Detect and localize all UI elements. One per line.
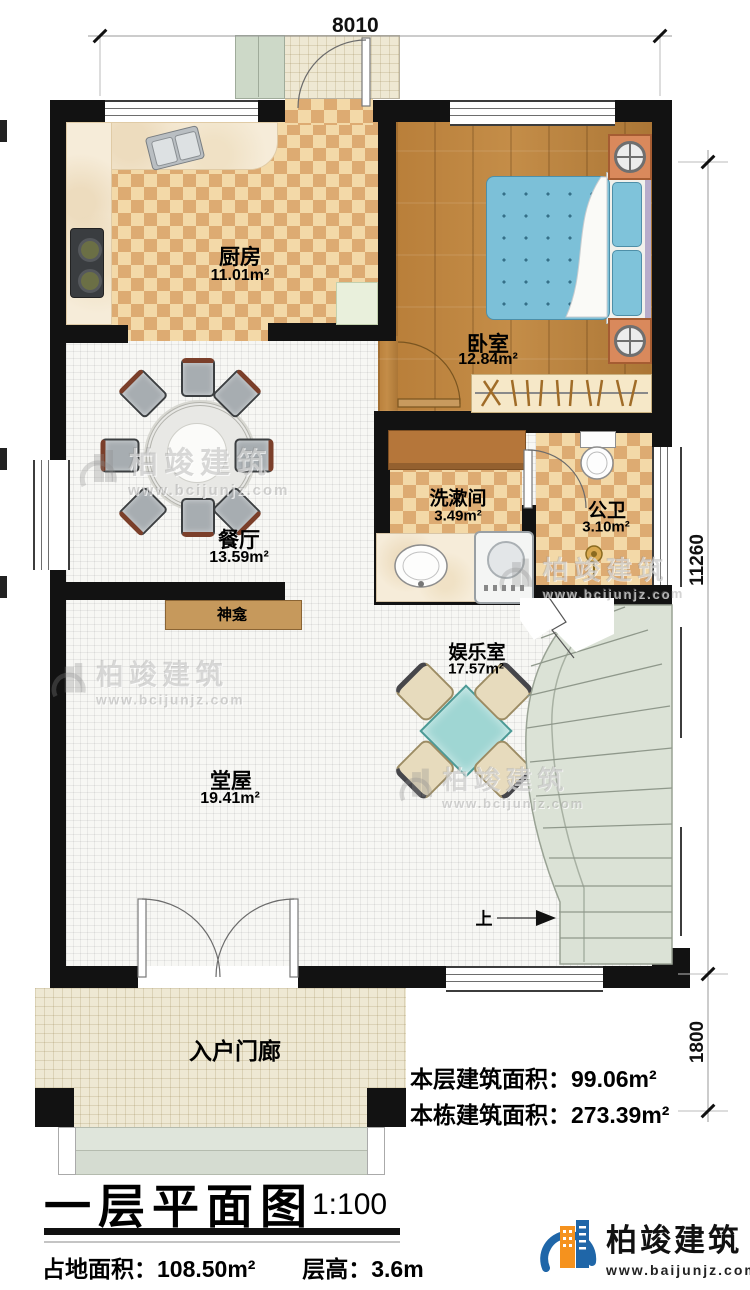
site-area-label: 占地面积： xyxy=(42,1256,157,1282)
room-area-toilet: 3.10m² xyxy=(582,519,630,536)
building-area-label: 本栋建筑面积： xyxy=(410,1102,571,1128)
wall-left-lower xyxy=(50,570,66,966)
washing-machine xyxy=(474,531,534,604)
dining-chair xyxy=(235,439,274,473)
porch-pillar-left xyxy=(35,1088,74,1127)
toilet-tank xyxy=(580,431,616,448)
nightstand-top xyxy=(608,134,652,180)
dining-chair xyxy=(181,498,215,537)
brand-logo-icon xyxy=(538,1212,598,1280)
porch-step-rail-right xyxy=(367,1127,385,1175)
kitchen-door-threshold xyxy=(285,97,373,125)
room-area-hall: 19.41m² xyxy=(200,790,260,808)
floor-height-value: 3.6m xyxy=(371,1256,423,1282)
backdoor-step-divider xyxy=(258,35,259,97)
wardrobe xyxy=(471,374,652,413)
wall-kitchen-bottom-stub xyxy=(50,325,128,343)
washroom-counter xyxy=(376,533,476,602)
nightstand-bottom xyxy=(608,318,652,364)
nightstand-lamp xyxy=(614,141,646,173)
dim-tick xyxy=(701,1104,716,1119)
title-underline-thick xyxy=(44,1228,400,1235)
kitchen-stove xyxy=(70,228,104,298)
site-area-value: 108.50m² xyxy=(157,1256,255,1282)
dim-right-porch-label: 1800 xyxy=(687,1021,709,1063)
room-area-washroom: 3.49m² xyxy=(434,508,482,525)
hall-window xyxy=(446,966,603,992)
site-area-line: 占地面积：108.50m² 层高：3.6m xyxy=(42,1250,424,1284)
stove-burner-1 xyxy=(78,238,102,262)
bedroom-vestibule-floor xyxy=(378,336,398,412)
dim-right-main-label: 11260 xyxy=(687,534,709,586)
porch-step-1 xyxy=(74,1127,369,1152)
wall-kitchen-bottom xyxy=(268,323,396,341)
dining-chair xyxy=(101,439,140,473)
room-label-washroom: 洗漱间 xyxy=(429,484,486,511)
wall-right-3 xyxy=(652,738,672,827)
washroom-cabinet xyxy=(388,430,526,470)
stairs-window-upper xyxy=(652,627,682,738)
brand-name: 柏竣建筑 xyxy=(606,1215,750,1260)
plan-title: 一层平面图 xyxy=(44,1168,314,1237)
dim-tick xyxy=(701,967,716,982)
dining-window xyxy=(33,460,70,570)
room-label-porch: 入户门廊 xyxy=(189,1032,281,1066)
backdoor-step-block xyxy=(235,35,285,99)
washer-controls xyxy=(484,585,524,591)
floor-area-line: 本层建筑面积：99.06m² xyxy=(410,1060,657,1094)
edge-mark xyxy=(0,120,7,142)
sink-basin-left xyxy=(151,136,179,167)
dim-top-label: 8010 xyxy=(332,14,379,38)
wall-bottom-1 xyxy=(50,966,138,988)
dining-chair xyxy=(181,358,215,397)
washer-drum xyxy=(487,541,525,579)
bed-strip xyxy=(645,172,651,322)
room-area-kitchen: 11.01m² xyxy=(211,267,270,285)
wall-dining-bottom xyxy=(50,582,285,600)
sink-basin-right xyxy=(174,131,202,162)
building-area-value: 273.39m² xyxy=(571,1102,669,1128)
wall-bottom-2 xyxy=(298,966,446,988)
corner-pier xyxy=(672,948,690,988)
wall-top-2 xyxy=(258,100,285,122)
nightstand-lamp xyxy=(614,325,646,357)
stairs-window-lower xyxy=(652,827,682,936)
room-area-entertainment: 17.57m² xyxy=(448,661,504,678)
brand-logo: 柏竣建筑 www.baijunjz.com xyxy=(538,1212,750,1280)
floorplan-page: 8010 11260 1800 厨房 11.01m² 卧室 12.84m² 餐厅… xyxy=(0,0,750,1290)
bed-mattress xyxy=(486,176,610,320)
building-area-line: 本栋建筑面积：273.39m² xyxy=(410,1096,669,1130)
wall-right-1 xyxy=(652,100,672,447)
bedroom-window xyxy=(450,100,615,126)
edge-mark xyxy=(0,576,7,598)
bed-pillow-1 xyxy=(612,182,642,247)
wall-kitchen-bedroom xyxy=(378,100,396,336)
toilet-window xyxy=(652,447,682,587)
shrine-label: 神龛 xyxy=(217,604,247,625)
floor-area-label: 本层建筑面积： xyxy=(410,1066,571,1092)
dim-tick xyxy=(701,155,716,170)
stairs-up-label: 上 xyxy=(476,905,493,930)
dim-tick xyxy=(93,29,108,44)
wall-left-upper xyxy=(50,100,66,460)
edge-mark xyxy=(0,448,7,470)
title-underline-thin xyxy=(44,1241,400,1243)
room-area-bedroom: 12.84m² xyxy=(458,351,518,369)
kitchen-board xyxy=(336,282,378,325)
dining-table-center xyxy=(167,423,227,483)
floor-area-value: 99.06m² xyxy=(571,1066,657,1092)
dim-tick xyxy=(653,29,668,44)
brand-url: www.baijunjz.com xyxy=(606,1262,750,1278)
porch-pillar-right xyxy=(367,1088,406,1127)
room-area-dining: 13.59m² xyxy=(209,549,269,567)
bed-pillow-2 xyxy=(612,250,642,316)
stove-burner-2 xyxy=(78,269,102,293)
floor-height-label: 层高： xyxy=(302,1256,371,1282)
plan-scale: 1:100 xyxy=(312,1188,387,1222)
